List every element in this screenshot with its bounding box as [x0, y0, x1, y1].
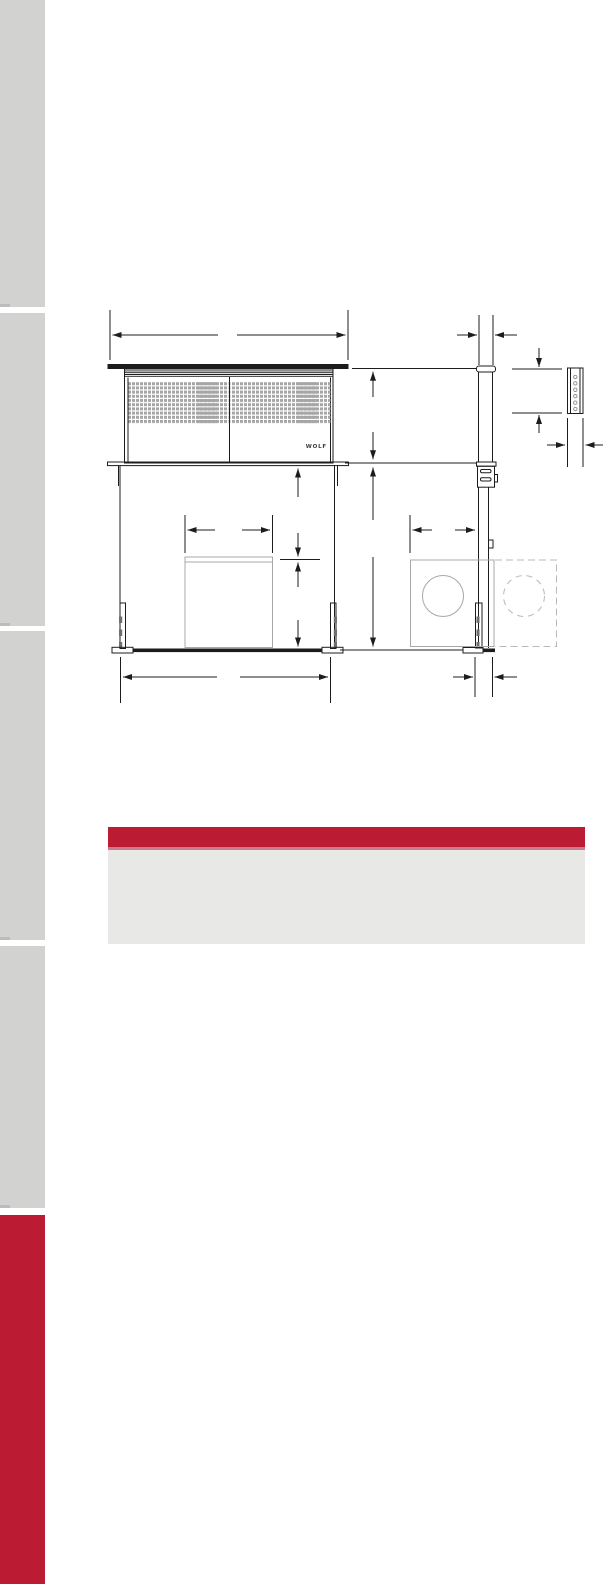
blower-box-alternate-dashed: [495, 560, 557, 647]
grille-slot-left: [197, 382, 217, 424]
callout-header-bar: [108, 827, 585, 847]
mounting-flange: [108, 462, 349, 486]
callout-note-panel: [108, 850, 585, 944]
side-view: [340, 315, 557, 697]
bracket-right: [331, 603, 337, 649]
front-bottom-width-dimension: [121, 657, 331, 703]
bracket-left: [120, 603, 126, 649]
front-top-width-dimension: [110, 310, 348, 360]
bracket-body: [568, 368, 584, 414]
side-offset-dimension: [410, 515, 475, 553]
riser-column: [463, 366, 498, 653]
grille-slot-right: [297, 382, 317, 424]
duct-box: [185, 557, 273, 648]
grille-assembly: WOLF: [125, 369, 334, 463]
document-page: WOLF: [0, 0, 605, 1584]
duct-width-dimension: [185, 515, 273, 553]
reference-lines: [340, 369, 477, 651]
bracket-height-dimension: [512, 348, 562, 433]
dimension-drawing: WOLF: [0, 0, 605, 1584]
wolf-logo: WOLF: [306, 444, 327, 450]
mounting-bracket-detail: [512, 348, 603, 467]
front-view: WOLF: [108, 310, 349, 703]
countertop-surface: [108, 364, 349, 369]
front-vertical-dimensions: [280, 469, 320, 647]
riser-thickness-dimension: [457, 315, 517, 365]
bracket-width-dimension: [547, 418, 603, 467]
side-bottom-dimension: [453, 657, 517, 697]
